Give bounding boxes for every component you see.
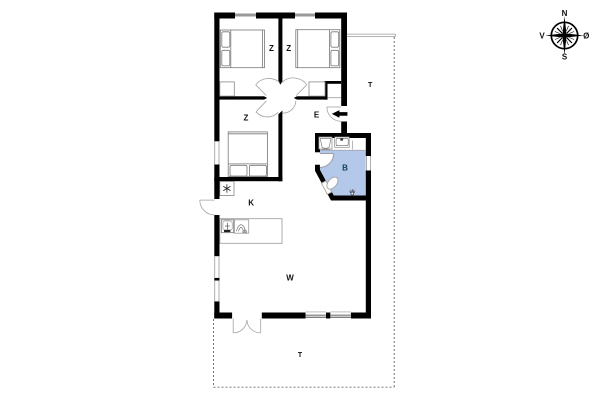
svg-text:K: K <box>248 199 254 208</box>
svg-text:T: T <box>298 352 303 359</box>
svg-text:S: S <box>562 53 568 62</box>
svg-text:Z: Z <box>286 44 291 53</box>
svg-text:B: B <box>342 164 348 173</box>
svg-text:Z: Z <box>269 44 274 53</box>
svg-text:Ø: Ø <box>583 32 589 41</box>
svg-text:V: V <box>539 31 545 40</box>
svg-text:E: E <box>314 110 320 119</box>
svg-text:N: N <box>562 9 568 18</box>
svg-text:Z: Z <box>244 114 249 123</box>
svg-text:W: W <box>286 274 294 283</box>
svg-text:T: T <box>368 82 373 89</box>
